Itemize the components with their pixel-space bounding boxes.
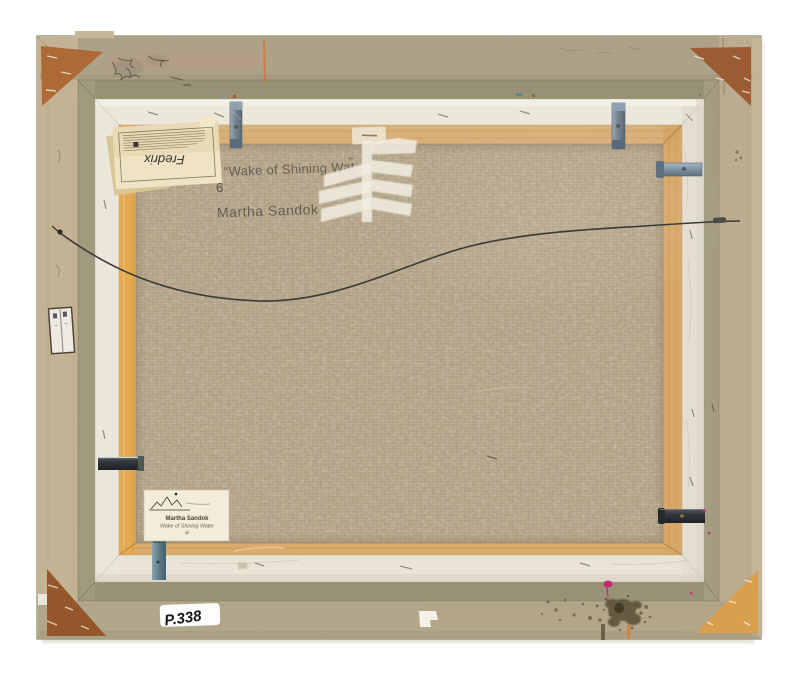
- svg-text:oil: oil: [185, 530, 190, 535]
- svg-text:Martha Sandok: Martha Sandok: [165, 516, 209, 522]
- svg-text:Wake of Shining Water: Wake of Shining Water: [160, 524, 214, 530]
- svg-text:Fredrix: Fredrix: [144, 152, 185, 167]
